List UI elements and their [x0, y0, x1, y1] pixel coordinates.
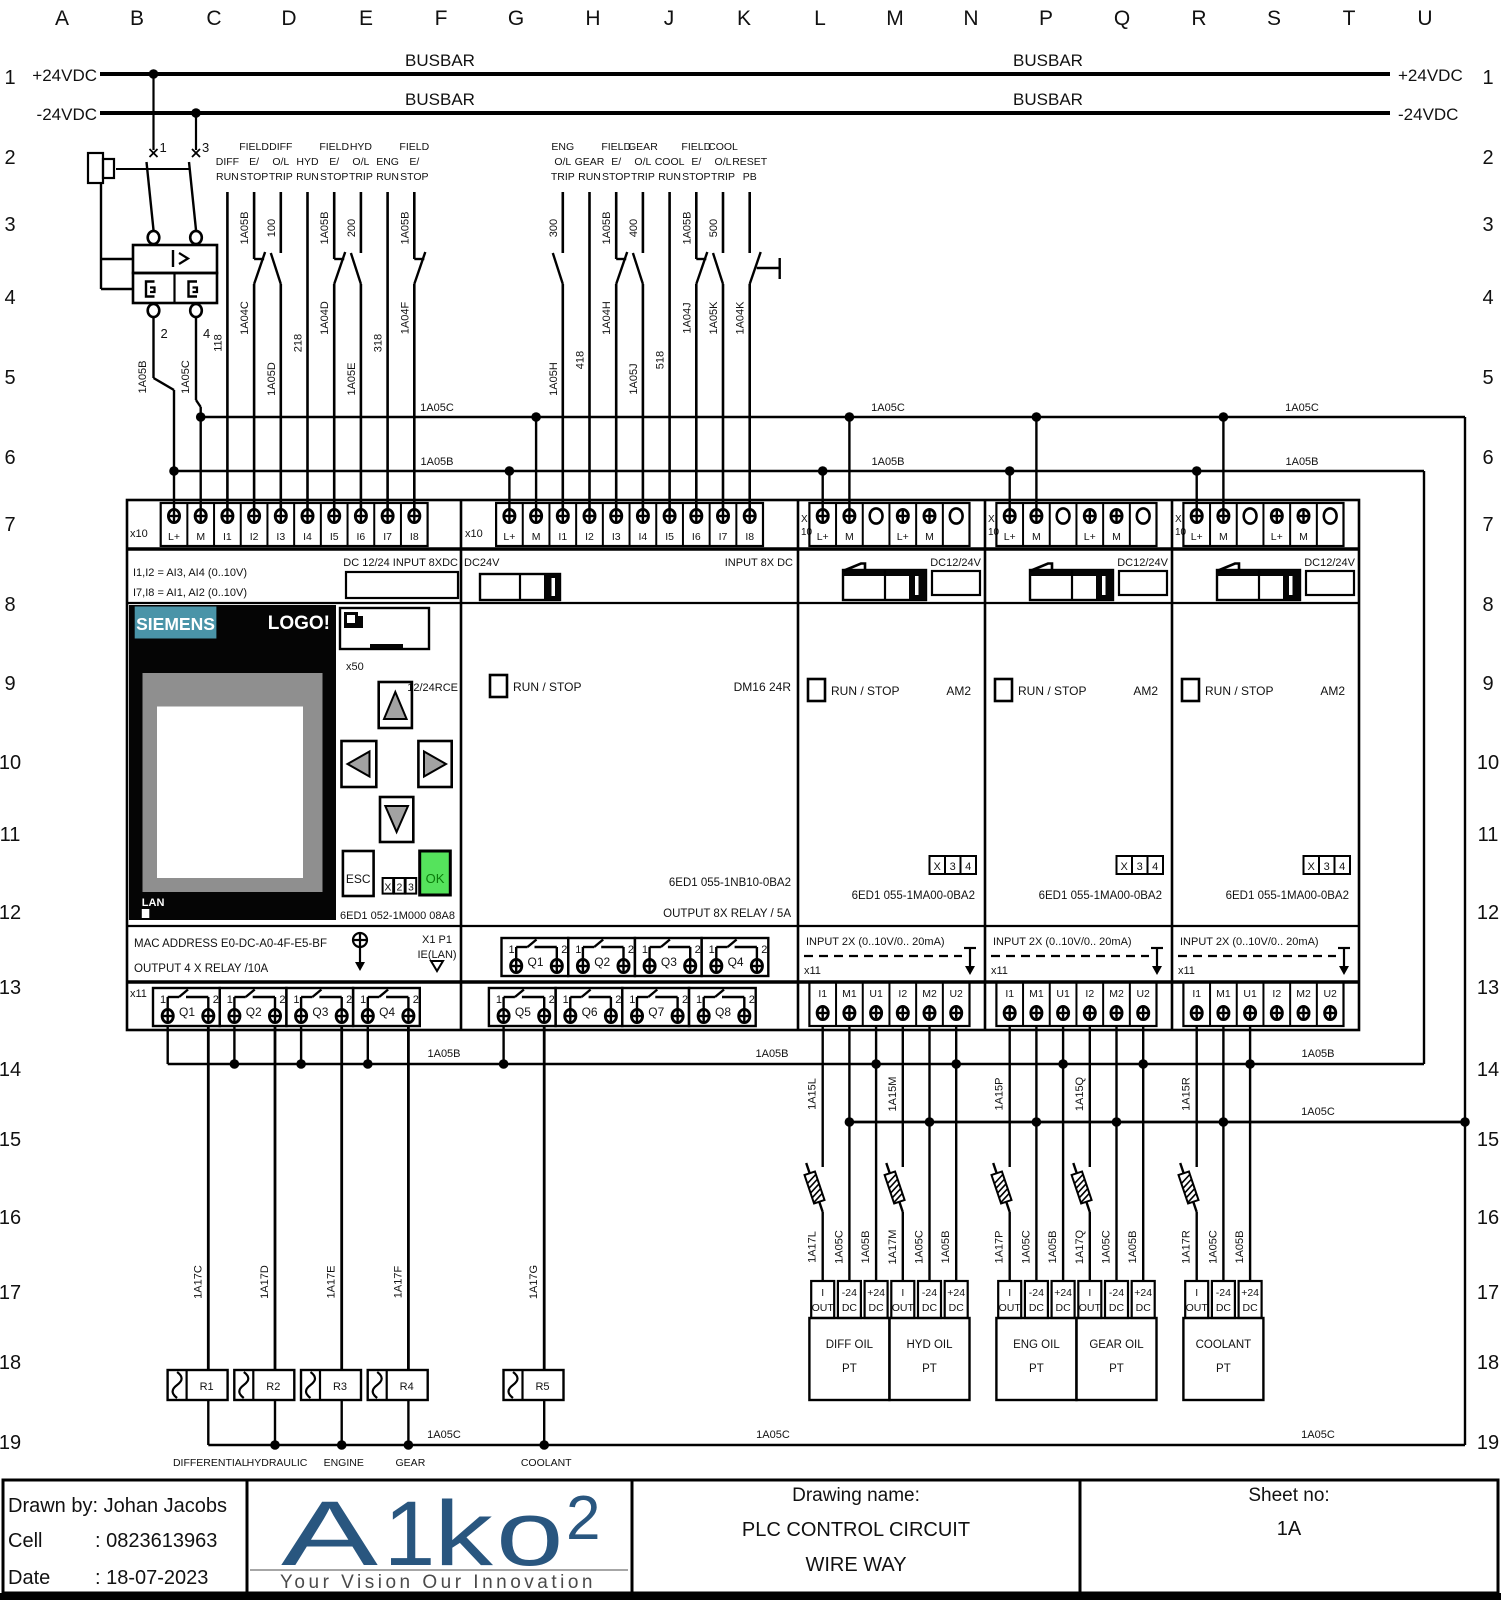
- svg-text:E/: E/: [249, 156, 259, 168]
- svg-text:1A17M: 1A17M: [887, 1230, 899, 1265]
- svg-text:DC24V: DC24V: [464, 557, 500, 569]
- svg-text:18: 18: [0, 1352, 21, 1374]
- svg-text:M1: M1: [1029, 988, 1044, 1000]
- svg-text:9: 9: [1482, 673, 1493, 695]
- svg-text:R2: R2: [266, 1381, 280, 1393]
- svg-text:O/L: O/L: [634, 156, 651, 168]
- svg-text:3: 3: [1137, 861, 1143, 873]
- svg-text:1A15R: 1A15R: [1181, 1077, 1193, 1111]
- svg-text:1A17Q: 1A17Q: [1074, 1229, 1086, 1264]
- svg-text:2: 2: [628, 944, 634, 956]
- svg-text:6: 6: [1482, 447, 1493, 469]
- svg-text:4: 4: [203, 326, 210, 341]
- svg-text:I: I: [821, 1287, 824, 1299]
- svg-text:1A05C: 1A05C: [756, 1429, 790, 1441]
- svg-text:19: 19: [0, 1432, 21, 1454]
- svg-text:Q6: Q6: [582, 1005, 598, 1019]
- svg-text:1A05C: 1A05C: [1301, 1106, 1335, 1118]
- svg-text:1A15P: 1A15P: [994, 1077, 1006, 1110]
- svg-text:-24VDC: -24VDC: [1398, 105, 1458, 124]
- svg-text:K: K: [737, 7, 751, 30]
- svg-text:3: 3: [1324, 861, 1330, 873]
- svg-text:X: X: [384, 882, 391, 894]
- svg-text:IE(LAN): IE(LAN): [417, 949, 456, 961]
- svg-text:STOP: STOP: [320, 171, 348, 183]
- svg-text:I: I: [1008, 1287, 1011, 1299]
- svg-text:1A05B: 1A05B: [427, 1048, 460, 1060]
- svg-text:I1: I1: [223, 531, 232, 543]
- svg-text:1A05B: 1A05B: [1301, 1048, 1334, 1060]
- svg-text:R4: R4: [400, 1381, 414, 1393]
- svg-text:1A15L: 1A15L: [807, 1078, 819, 1110]
- svg-text:J: J: [664, 7, 675, 30]
- svg-text:Date: Date: [8, 1567, 50, 1589]
- svg-text:AM2: AM2: [1320, 684, 1345, 698]
- svg-text:DIFF: DIFF: [216, 156, 239, 168]
- svg-text:Q3: Q3: [312, 1005, 328, 1019]
- svg-text:INPUT 2X (0..10V/0.. 20mA): INPUT 2X (0..10V/0.. 20mA): [806, 936, 945, 948]
- svg-text:1: 1: [629, 994, 635, 1006]
- svg-text:6ED1 052-1M000 08A8: 6ED1 052-1M000 08A8: [340, 910, 455, 922]
- svg-text:6ED1 055-1NB10-0BA2: 6ED1 055-1NB10-0BA2: [669, 877, 791, 889]
- svg-text:200: 200: [346, 219, 358, 237]
- svg-text:2: 2: [396, 882, 402, 894]
- svg-text:E/: E/: [329, 156, 339, 168]
- svg-text:6ED1 055-1MA00-0BA2: 6ED1 055-1MA00-0BA2: [1039, 890, 1162, 902]
- svg-text:10: 10: [0, 752, 21, 774]
- svg-text:6ED1 055-1MA00-0BA2: 6ED1 055-1MA00-0BA2: [1226, 890, 1349, 902]
- svg-text:2: 2: [161, 326, 168, 341]
- svg-text:D: D: [281, 7, 296, 30]
- svg-text:U: U: [1417, 7, 1432, 30]
- svg-text:ENG: ENG: [376, 156, 399, 168]
- svg-text:L: L: [814, 7, 826, 30]
- svg-text:TRIP: TRIP: [269, 171, 293, 183]
- svg-text:18: 18: [1477, 1352, 1499, 1374]
- svg-text:O/L: O/L: [272, 156, 289, 168]
- svg-text:DM16 24R: DM16 24R: [734, 680, 792, 694]
- svg-text:I1,I2 = AI3, AI4 (0..10V): I1,I2 = AI3, AI4 (0..10V): [133, 567, 247, 579]
- svg-text:E/: E/: [409, 156, 419, 168]
- svg-text:P: P: [1039, 7, 1053, 30]
- svg-text:1A05B: 1A05B: [1285, 456, 1318, 468]
- svg-text:U1: U1: [869, 988, 883, 1000]
- svg-text:X: X: [988, 514, 995, 525]
- svg-text:OUTPUT 4 X RELAY /10A: OUTPUT 4 X RELAY /10A: [134, 963, 269, 975]
- svg-text:PB: PB: [743, 171, 757, 183]
- svg-text:TRIP: TRIP: [349, 171, 373, 183]
- svg-text:STOP: STOP: [602, 171, 630, 183]
- svg-text:+24: +24: [947, 1287, 965, 1299]
- svg-text:1A17P: 1A17P: [994, 1230, 1006, 1263]
- svg-text:OUTPUT 8X RELAY / 5A: OUTPUT 8X RELAY / 5A: [663, 908, 791, 920]
- svg-text:10: 10: [801, 527, 813, 538]
- svg-text:BUSBAR: BUSBAR: [405, 51, 475, 70]
- svg-text:2: 2: [695, 944, 701, 956]
- svg-text:I7,I8 = AI1, AI2 (0..10V): I7,I8 = AI1, AI2 (0..10V): [133, 587, 247, 599]
- svg-text:12: 12: [0, 902, 21, 924]
- svg-text:5: 5: [4, 367, 15, 389]
- svg-text:: 0823613963: : 0823613963: [95, 1530, 217, 1552]
- svg-text:ENG OIL: ENG OIL: [1013, 1339, 1060, 1351]
- svg-text:1: 1: [696, 994, 702, 1006]
- svg-text:1A04J: 1A04J: [681, 302, 693, 333]
- svg-text:2: 2: [549, 994, 555, 1006]
- svg-text:TRIP: TRIP: [551, 171, 575, 183]
- svg-text:DIFF: DIFF: [269, 141, 292, 153]
- svg-text:PT: PT: [1216, 1363, 1231, 1375]
- svg-text:Drawing name:: Drawing name:: [792, 1485, 920, 1506]
- svg-text:14: 14: [0, 1059, 21, 1081]
- svg-text:400: 400: [628, 219, 640, 237]
- svg-text:1A05C: 1A05C: [1020, 1230, 1032, 1264]
- svg-text:+24VDC: +24VDC: [32, 66, 97, 85]
- svg-text:4: 4: [1152, 861, 1158, 873]
- svg-text:1A04C: 1A04C: [239, 301, 251, 335]
- svg-text:218: 218: [293, 334, 305, 352]
- svg-text:1A05C: 1A05C: [180, 360, 192, 394]
- svg-text:19: 19: [1477, 1432, 1499, 1454]
- svg-text:I2: I2: [250, 531, 259, 543]
- svg-text:PT: PT: [842, 1363, 857, 1375]
- svg-text:MAC ADDRESS E0-DC-A0-4F-E5-BF: MAC ADDRESS E0-DC-A0-4F-E5-BF: [134, 938, 327, 950]
- svg-text:x11: x11: [1178, 965, 1195, 977]
- svg-text:11: 11: [1478, 824, 1499, 846]
- svg-text:1A17R: 1A17R: [1181, 1230, 1193, 1264]
- svg-text:WIRE WAY: WIRE WAY: [805, 1554, 906, 1576]
- svg-text:2: 2: [682, 994, 688, 1006]
- svg-text:1: 1: [1482, 67, 1493, 89]
- svg-text:I4: I4: [639, 531, 648, 543]
- svg-text:118: 118: [212, 334, 224, 352]
- svg-text:I2: I2: [1085, 988, 1094, 1000]
- svg-text:U2: U2: [949, 988, 963, 1000]
- svg-text:10: 10: [1175, 527, 1187, 538]
- svg-text:2: 2: [1482, 147, 1493, 169]
- svg-text:15: 15: [0, 1129, 21, 1151]
- svg-text:300: 300: [548, 219, 560, 237]
- svg-text:H: H: [585, 7, 600, 30]
- svg-text:1A05B: 1A05B: [940, 1230, 952, 1263]
- svg-text:M: M: [532, 531, 541, 543]
- svg-text:4: 4: [4, 287, 15, 309]
- svg-text:518: 518: [655, 351, 667, 369]
- svg-text:12: 12: [1477, 902, 1499, 924]
- svg-text:500: 500: [708, 219, 720, 237]
- svg-text:M: M: [886, 7, 904, 30]
- svg-text:F: F: [435, 7, 448, 30]
- svg-text:BUSBAR: BUSBAR: [1013, 90, 1083, 109]
- svg-text:A: A: [55, 7, 69, 30]
- svg-text:+24VDC: +24VDC: [1398, 66, 1463, 85]
- svg-text:16: 16: [0, 1207, 21, 1229]
- svg-text:Sheet no:: Sheet no:: [1248, 1485, 1329, 1506]
- svg-text:I: I: [1088, 1287, 1091, 1299]
- svg-text:DC: DC: [1243, 1302, 1259, 1314]
- svg-text:DC: DC: [1109, 1302, 1125, 1314]
- svg-text:L+: L+: [1191, 531, 1203, 543]
- svg-text:x50: x50: [346, 661, 364, 673]
- svg-text:1A04D: 1A04D: [319, 301, 331, 335]
- svg-text:Q2: Q2: [246, 1005, 262, 1019]
- svg-text:6: 6: [4, 447, 15, 469]
- svg-text:1A05B: 1A05B: [871, 456, 904, 468]
- svg-text:Q: Q: [1114, 7, 1130, 30]
- svg-text:1: 1: [509, 944, 515, 956]
- svg-text:1A05B: 1A05B: [399, 211, 411, 244]
- svg-text:RUN / STOP: RUN / STOP: [1018, 684, 1086, 698]
- svg-text:M: M: [1032, 531, 1041, 543]
- svg-text:+24: +24: [867, 1287, 885, 1299]
- svg-text:GEAR: GEAR: [396, 1457, 426, 1469]
- svg-text:AM2: AM2: [946, 684, 971, 698]
- svg-text:-24: -24: [842, 1287, 857, 1299]
- svg-text:2: 2: [413, 994, 419, 1006]
- svg-text:10: 10: [1477, 752, 1499, 774]
- svg-text:4: 4: [1482, 287, 1493, 309]
- svg-text:RUN: RUN: [578, 171, 601, 183]
- svg-text:x11: x11: [130, 988, 147, 1000]
- svg-text:2: 2: [279, 994, 285, 1006]
- svg-text:318: 318: [373, 334, 385, 352]
- svg-text:Q2: Q2: [594, 955, 610, 969]
- svg-text:M: M: [925, 531, 934, 543]
- svg-text:+24: +24: [1241, 1287, 1259, 1299]
- svg-text:Cell: Cell: [8, 1530, 42, 1552]
- svg-text:3: 3: [408, 882, 414, 894]
- svg-text:DC: DC: [869, 1302, 885, 1314]
- svg-text:1A05K: 1A05K: [708, 301, 720, 335]
- svg-text:1A17L: 1A17L: [807, 1231, 819, 1263]
- svg-text:L+: L+: [1084, 531, 1096, 543]
- svg-text:Q3: Q3: [661, 955, 677, 969]
- svg-text:1: 1: [160, 994, 166, 1006]
- svg-text:+24: +24: [1134, 1287, 1152, 1299]
- svg-text:PT: PT: [922, 1363, 937, 1375]
- svg-text:DC12/24V: DC12/24V: [1304, 557, 1355, 569]
- svg-text:x11: x11: [991, 965, 1008, 977]
- svg-text:X: X: [1308, 861, 1316, 873]
- svg-text:1A17G: 1A17G: [528, 1265, 540, 1299]
- svg-text:1: 1: [360, 994, 366, 1006]
- svg-text:RESET: RESET: [732, 156, 768, 168]
- svg-text:S: S: [1267, 7, 1281, 30]
- svg-text:R5: R5: [535, 1381, 549, 1393]
- svg-text:M2: M2: [1109, 988, 1124, 1000]
- svg-text:Q7: Q7: [648, 1005, 664, 1019]
- svg-text:7: 7: [1482, 514, 1493, 536]
- svg-text:OUT: OUT: [999, 1302, 1022, 1314]
- svg-text:COOLANT: COOLANT: [1196, 1339, 1252, 1351]
- svg-text:DIFF OIL: DIFF OIL: [826, 1339, 874, 1351]
- svg-text:1A05C: 1A05C: [1101, 1230, 1113, 1264]
- svg-text:1A05B: 1A05B: [1047, 1230, 1059, 1263]
- svg-text:1A05C: 1A05C: [914, 1230, 926, 1264]
- svg-text:-24: -24: [1216, 1287, 1231, 1299]
- svg-text:1: 1: [709, 944, 715, 956]
- svg-text:x10: x10: [465, 528, 483, 540]
- svg-text:ENG: ENG: [551, 141, 574, 153]
- svg-text:1A05C: 1A05C: [1285, 402, 1319, 414]
- svg-text:HYD: HYD: [350, 141, 373, 153]
- svg-text:OUT: OUT: [892, 1302, 915, 1314]
- svg-text:RUN / STOP: RUN / STOP: [1205, 684, 1273, 698]
- svg-text:1A05B: 1A05B: [319, 211, 331, 244]
- svg-text:I2: I2: [1272, 988, 1281, 1000]
- svg-text:Drawn by: Johan Jacobs: Drawn by: Johan Jacobs: [8, 1495, 227, 1517]
- svg-text:OK: OK: [426, 871, 445, 886]
- svg-text:3: 3: [4, 214, 15, 236]
- svg-text:Q8: Q8: [715, 1005, 731, 1019]
- svg-text:1A05B: 1A05B: [681, 211, 693, 244]
- svg-text:1A17D: 1A17D: [259, 1265, 271, 1299]
- svg-text:O/L: O/L: [352, 156, 369, 168]
- svg-text:INPUT 8X DC: INPUT 8X DC: [725, 557, 793, 569]
- svg-text:-24: -24: [922, 1287, 937, 1299]
- svg-text:1: 1: [293, 994, 299, 1006]
- svg-text:5: 5: [1482, 367, 1493, 389]
- svg-text:Q1: Q1: [527, 955, 543, 969]
- svg-text:L+: L+: [503, 531, 515, 543]
- svg-text:I7: I7: [383, 531, 392, 543]
- svg-text:I7: I7: [719, 531, 728, 543]
- svg-text:C: C: [206, 7, 221, 30]
- svg-text:RUN: RUN: [216, 171, 239, 183]
- svg-text:DC 12/24 INPUT 8XDC: DC 12/24 INPUT 8XDC: [343, 557, 458, 569]
- svg-text:X: X: [934, 861, 942, 873]
- svg-text:1A05B: 1A05B: [239, 211, 251, 244]
- svg-text:1: 1: [575, 944, 581, 956]
- svg-text:M: M: [196, 531, 205, 543]
- svg-text:FIELD: FIELD: [239, 141, 269, 153]
- svg-text:2: 2: [615, 994, 621, 1006]
- svg-text:PT: PT: [1109, 1363, 1124, 1375]
- svg-text:4: 4: [965, 861, 971, 873]
- svg-text:16: 16: [1477, 1207, 1499, 1229]
- svg-text:STOP: STOP: [240, 171, 268, 183]
- svg-text:14: 14: [1477, 1059, 1499, 1081]
- svg-text:SIEMENS: SIEMENS: [136, 614, 215, 634]
- svg-text:1A05H: 1A05H: [548, 362, 560, 396]
- svg-text:M1: M1: [1216, 988, 1231, 1000]
- svg-text:2: 2: [749, 994, 755, 1006]
- svg-text:X: X: [1121, 861, 1129, 873]
- svg-text:1: 1: [496, 994, 502, 1006]
- svg-text:I3: I3: [612, 531, 621, 543]
- svg-text:DIFFERENTIAL: DIFFERENTIAL: [173, 1457, 248, 1469]
- svg-text:DC: DC: [1056, 1302, 1072, 1314]
- svg-text:1A04H: 1A04H: [601, 301, 613, 335]
- svg-text:OUT: OUT: [812, 1302, 835, 1314]
- svg-text:L+: L+: [1271, 531, 1283, 543]
- svg-text:I8: I8: [745, 531, 754, 543]
- svg-text:7: 7: [4, 514, 15, 536]
- svg-text:LAN: LAN: [142, 897, 165, 909]
- svg-text:+24: +24: [1054, 1287, 1072, 1299]
- svg-text:DC: DC: [1136, 1302, 1152, 1314]
- svg-text:G: G: [508, 7, 524, 30]
- svg-text:U1: U1: [1243, 988, 1257, 1000]
- svg-text:8: 8: [1482, 594, 1493, 616]
- svg-text:I8: I8: [410, 531, 419, 543]
- svg-text:1A04K: 1A04K: [735, 301, 747, 335]
- svg-text:I: I: [901, 1287, 904, 1299]
- svg-text:HYD OIL: HYD OIL: [906, 1339, 953, 1351]
- svg-text:O/L: O/L: [715, 156, 732, 168]
- svg-text:1: 1: [160, 140, 167, 155]
- svg-text:RUN / STOP: RUN / STOP: [513, 680, 581, 694]
- svg-text:O/L: O/L: [554, 156, 571, 168]
- svg-text:: 18-07-2023: : 18-07-2023: [95, 1567, 208, 1589]
- svg-text:M: M: [1219, 531, 1228, 543]
- svg-text:10: 10: [988, 527, 1000, 538]
- svg-text:11: 11: [0, 824, 20, 846]
- svg-text:E: E: [359, 7, 373, 30]
- svg-text:1A05B: 1A05B: [755, 1048, 788, 1060]
- svg-text:M1: M1: [842, 988, 857, 1000]
- svg-text:U1: U1: [1056, 988, 1070, 1000]
- svg-text:LOGO!: LOGO!: [268, 613, 330, 634]
- svg-text:13: 13: [1477, 977, 1499, 999]
- svg-text:I2: I2: [898, 988, 907, 1000]
- svg-text:I1: I1: [1192, 988, 1201, 1000]
- svg-text:o: o: [496, 1481, 564, 1584]
- svg-text:B: B: [130, 7, 144, 30]
- svg-text:DC: DC: [949, 1302, 965, 1314]
- svg-text:X: X: [801, 514, 808, 525]
- svg-text:R: R: [1191, 7, 1206, 30]
- svg-text:X1 P1: X1 P1: [422, 934, 452, 946]
- svg-text:Your Vision Our Innovation: Your Vision Our Innovation: [280, 1572, 596, 1593]
- svg-text:1: 1: [227, 994, 233, 1006]
- svg-text:L+: L+: [1004, 531, 1016, 543]
- svg-text:L+: L+: [897, 531, 909, 543]
- svg-text:OUT: OUT: [1079, 1302, 1102, 1314]
- svg-text:I5: I5: [330, 531, 339, 543]
- svg-text:TRIP: TRIP: [631, 171, 655, 183]
- svg-text:STOP: STOP: [400, 171, 428, 183]
- svg-text:2: 2: [346, 994, 352, 1006]
- svg-text:DC: DC: [842, 1302, 858, 1314]
- svg-text:L+: L+: [168, 531, 180, 543]
- svg-text:1A05C: 1A05C: [1207, 1230, 1219, 1264]
- svg-text:1A05B: 1A05B: [860, 1230, 872, 1263]
- svg-text:STOP: STOP: [682, 171, 710, 183]
- svg-text:TRIP: TRIP: [711, 171, 735, 183]
- svg-text:1A05B: 1A05B: [137, 360, 149, 393]
- svg-text:418: 418: [575, 351, 587, 369]
- svg-text:DC: DC: [1029, 1302, 1045, 1314]
- svg-text:INPUT 2X (0..10V/0.. 20mA): INPUT 2X (0..10V/0.. 20mA): [993, 936, 1132, 948]
- svg-text:100: 100: [266, 219, 278, 237]
- svg-text:2: 2: [561, 944, 567, 956]
- svg-text:1A05C: 1A05C: [833, 1230, 845, 1264]
- svg-text:DC: DC: [922, 1302, 938, 1314]
- svg-text:1: 1: [4, 67, 15, 89]
- svg-text:GEAR: GEAR: [575, 156, 605, 168]
- svg-text:HYD: HYD: [296, 156, 319, 168]
- svg-text:1A04F: 1A04F: [399, 302, 411, 335]
- svg-text:R3: R3: [333, 1381, 347, 1393]
- svg-text:9: 9: [4, 673, 15, 695]
- svg-text:1A05C: 1A05C: [420, 402, 454, 414]
- svg-text:x11: x11: [804, 965, 821, 977]
- svg-text:RUN: RUN: [296, 171, 319, 183]
- svg-text:U2: U2: [1323, 988, 1337, 1000]
- svg-text:BUSBAR: BUSBAR: [1013, 51, 1083, 70]
- svg-text:BUSBAR: BUSBAR: [405, 90, 475, 109]
- svg-text:ESC: ESC: [346, 872, 371, 886]
